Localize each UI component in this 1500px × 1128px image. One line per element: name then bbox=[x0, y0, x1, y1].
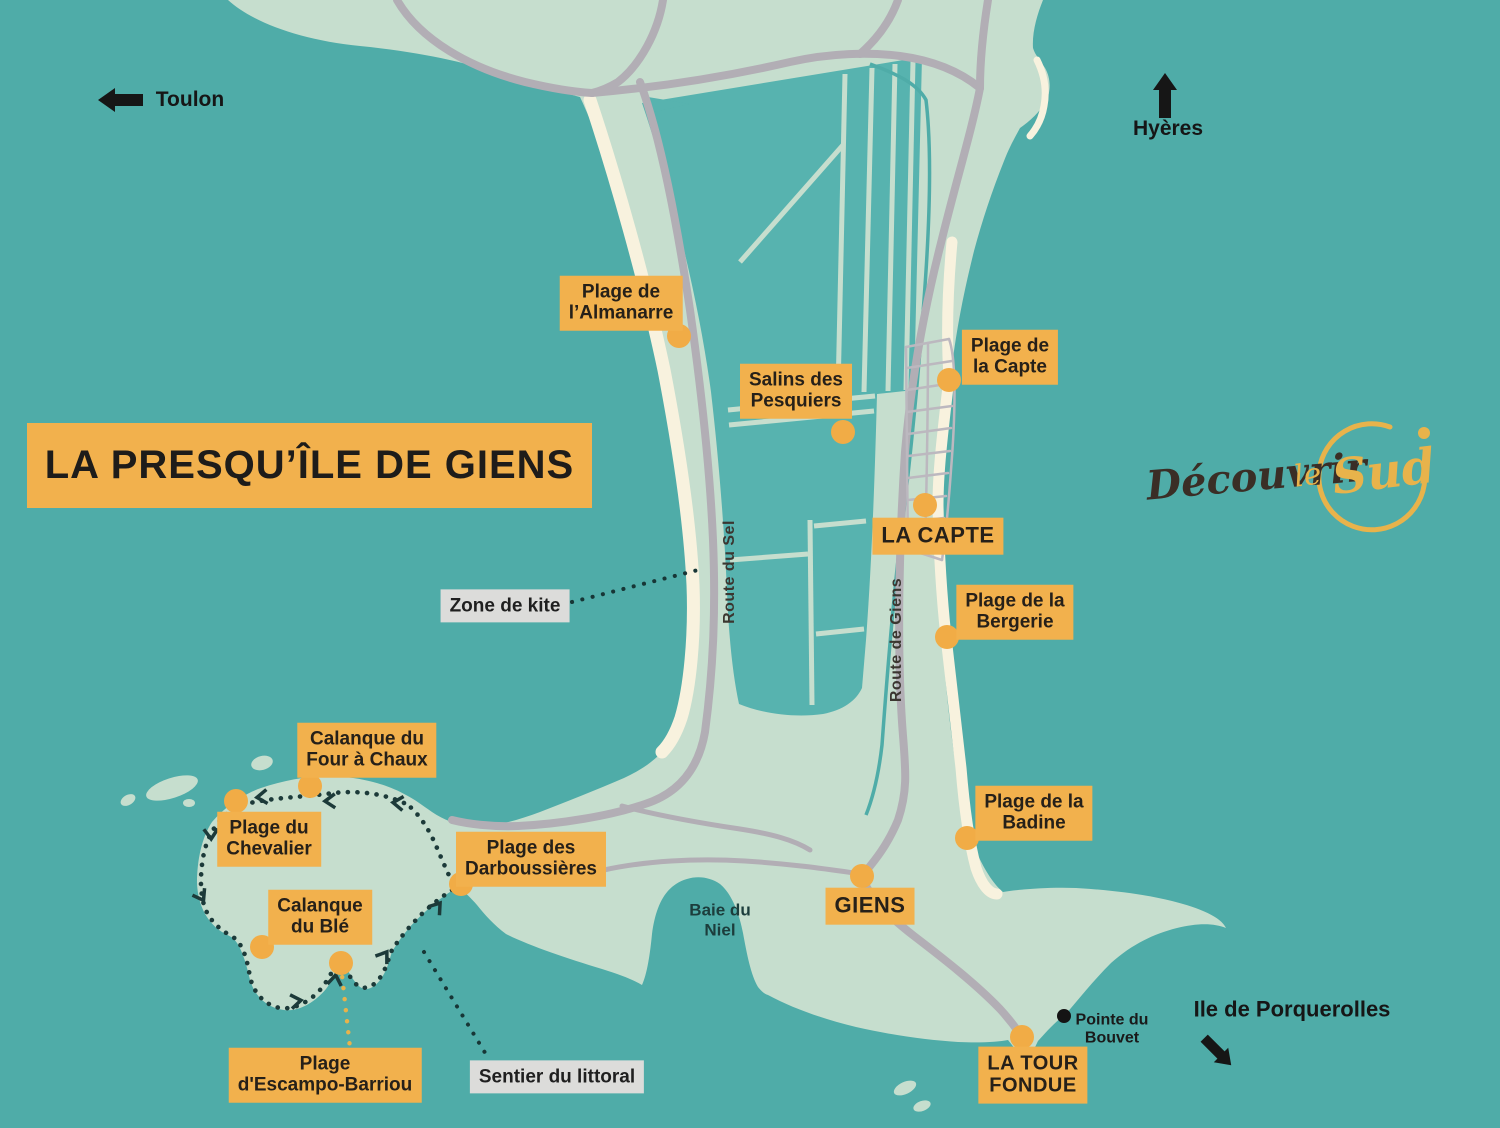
label-route-de-giens: Route de Giens bbox=[888, 578, 906, 702]
map-title: LA PRESQU’ÎLE DE GIENS bbox=[45, 443, 574, 488]
poi-dot-plage-capte bbox=[937, 368, 961, 392]
label-la-capte: LA CAPTE bbox=[872, 518, 1003, 555]
map-canvas bbox=[0, 0, 1500, 1128]
islet bbox=[183, 799, 195, 807]
map-infographic: LA PRESQU’ÎLE DE GIENS Plage de l’Almana… bbox=[0, 0, 1500, 1128]
label-zone-de-kite: Zone de kite bbox=[441, 589, 570, 622]
label-salins-pesquiers: Salins des Pesquiers bbox=[740, 364, 852, 419]
label-plage-bergerie: Plage de la Bergerie bbox=[956, 585, 1073, 640]
label-plage-darboussieres: Plage des Darboussières bbox=[456, 832, 606, 887]
label-calanque-ble: Calanque du Blé bbox=[268, 890, 372, 945]
poi-dot-giens bbox=[850, 864, 874, 888]
label-plage-chevalier: Plage du Chevalier bbox=[217, 812, 321, 867]
label-plage-escampo: Plage d'Escampo-Barriou bbox=[229, 1048, 422, 1103]
label-pointe-bouvet: Pointe du Bouvet bbox=[1076, 1012, 1149, 1049]
logo-dot-icon bbox=[1418, 427, 1430, 439]
label-toulon: Toulon bbox=[156, 88, 224, 112]
label-tour-fondue: LA TOUR FONDUE bbox=[978, 1047, 1087, 1104]
poi-dot-tour-fondue bbox=[1010, 1025, 1034, 1049]
map-title-box: LA PRESQU’ÎLE DE GIENS bbox=[27, 423, 592, 508]
label-route-du-sel: Route du Sel bbox=[721, 520, 739, 624]
label-giens: GIENS bbox=[826, 888, 915, 925]
poi-dot-four-a-chaux bbox=[298, 774, 322, 798]
pointe-bouvet-dot bbox=[1057, 1009, 1071, 1023]
label-plage-badine: Plage de la Badine bbox=[975, 786, 1092, 841]
label-hyeres: Hyères bbox=[1133, 117, 1203, 141]
pond-dike bbox=[810, 520, 812, 705]
label-plage-almanarre: Plage de l’Almanarre bbox=[560, 276, 683, 331]
label-porquerolles: Ile de Porquerolles bbox=[1194, 996, 1391, 1021]
label-four-a-chaux: Calanque du Four à Chaux bbox=[297, 723, 436, 778]
poi-dot-la-capte bbox=[913, 493, 937, 517]
poi-dot-escampo bbox=[329, 951, 353, 975]
logo-word-le: le bbox=[1292, 456, 1324, 494]
label-baie-du-niel: Baie du Niel bbox=[689, 900, 750, 939]
poi-dot-salins bbox=[831, 420, 855, 444]
label-plage-capte: Plage de la Capte bbox=[962, 330, 1058, 385]
poi-dot-chevalier bbox=[224, 789, 248, 813]
label-sentier-littoral: Sentier du littoral bbox=[470, 1060, 644, 1093]
